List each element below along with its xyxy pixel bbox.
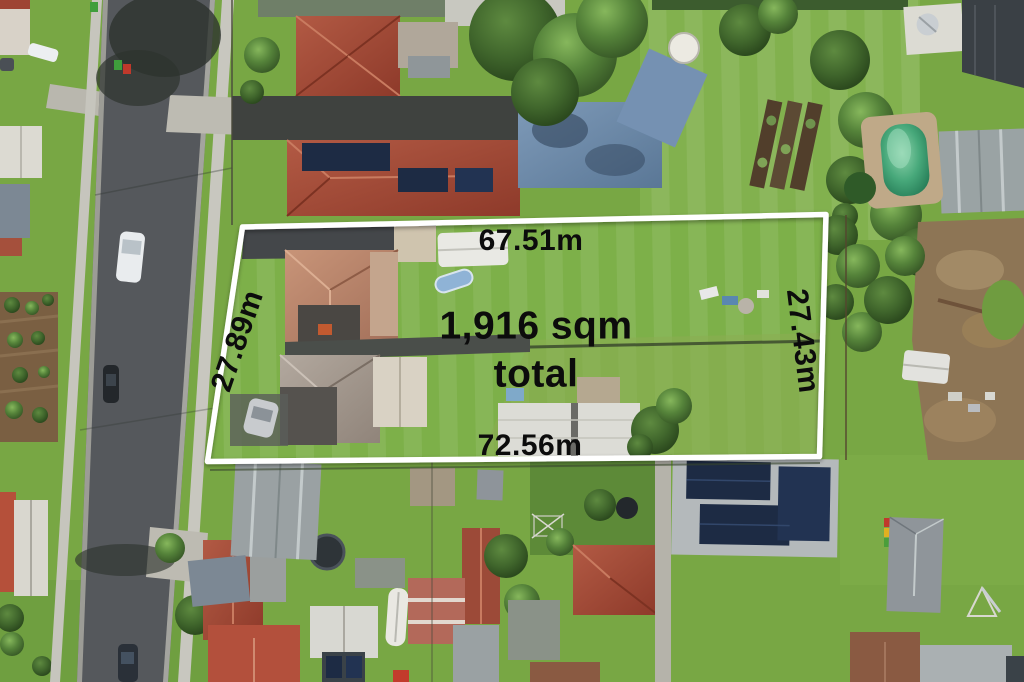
- lot-house-upper: [285, 250, 398, 342]
- area-line1: 1,916 sqm: [439, 302, 632, 350]
- wheelie-bin-red: [123, 64, 131, 74]
- gray-shed: [939, 128, 1024, 213]
- red-roof-house-south: [573, 545, 658, 615]
- red-vehicle: [393, 670, 409, 682]
- gray-garage-long: [231, 460, 322, 560]
- red-roof-house-b-solar: [287, 140, 520, 216]
- shed-white: [903, 3, 964, 55]
- parked-car-white-van: [115, 231, 145, 283]
- boat-white: [385, 587, 409, 646]
- terraced-garden: [0, 292, 58, 442]
- wheelie-bin-green: [90, 2, 98, 12]
- solar-roof-house: [671, 457, 839, 558]
- dark-rear-wing: [280, 387, 337, 445]
- carport-shadow: [232, 96, 530, 140]
- dimension-bottom: 72.56m: [478, 429, 583, 464]
- parked-car-black: [103, 365, 119, 403]
- area-total-label: 1,916 sqm total: [439, 302, 632, 397]
- area-line2: total: [439, 350, 632, 398]
- gray-hip-house-south-east: [886, 517, 943, 613]
- solar-panel-array: [302, 143, 390, 171]
- dimension-top: 67.51m: [479, 224, 584, 259]
- south-driveway: [655, 458, 671, 682]
- trailer-white: [902, 350, 951, 385]
- parked-car-dark: [118, 644, 138, 682]
- aerial-listing-photo: 67.51m 1,916 sqm total 72.56m 27.89m 27.…: [0, 0, 1024, 682]
- umbrella-dark: [616, 497, 638, 519]
- dark-front-wing: [298, 305, 360, 342]
